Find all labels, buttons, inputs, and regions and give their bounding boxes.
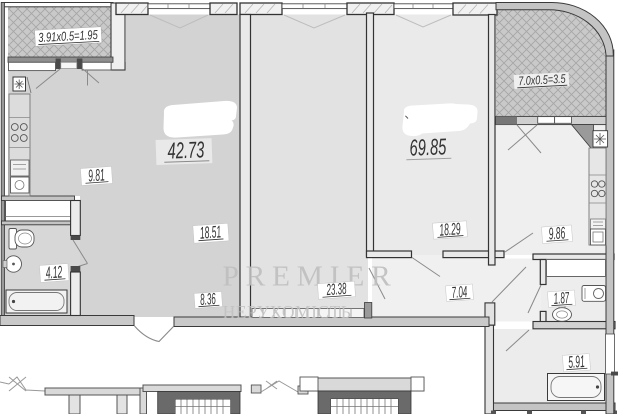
- svg-text:69.85: 69.85: [409, 135, 447, 161]
- svg-text:НЕРУХОМІСТЬ: НЕРУХОМІСТЬ: [223, 302, 352, 322]
- svg-text:PREMIER: PREMIER: [222, 261, 397, 292]
